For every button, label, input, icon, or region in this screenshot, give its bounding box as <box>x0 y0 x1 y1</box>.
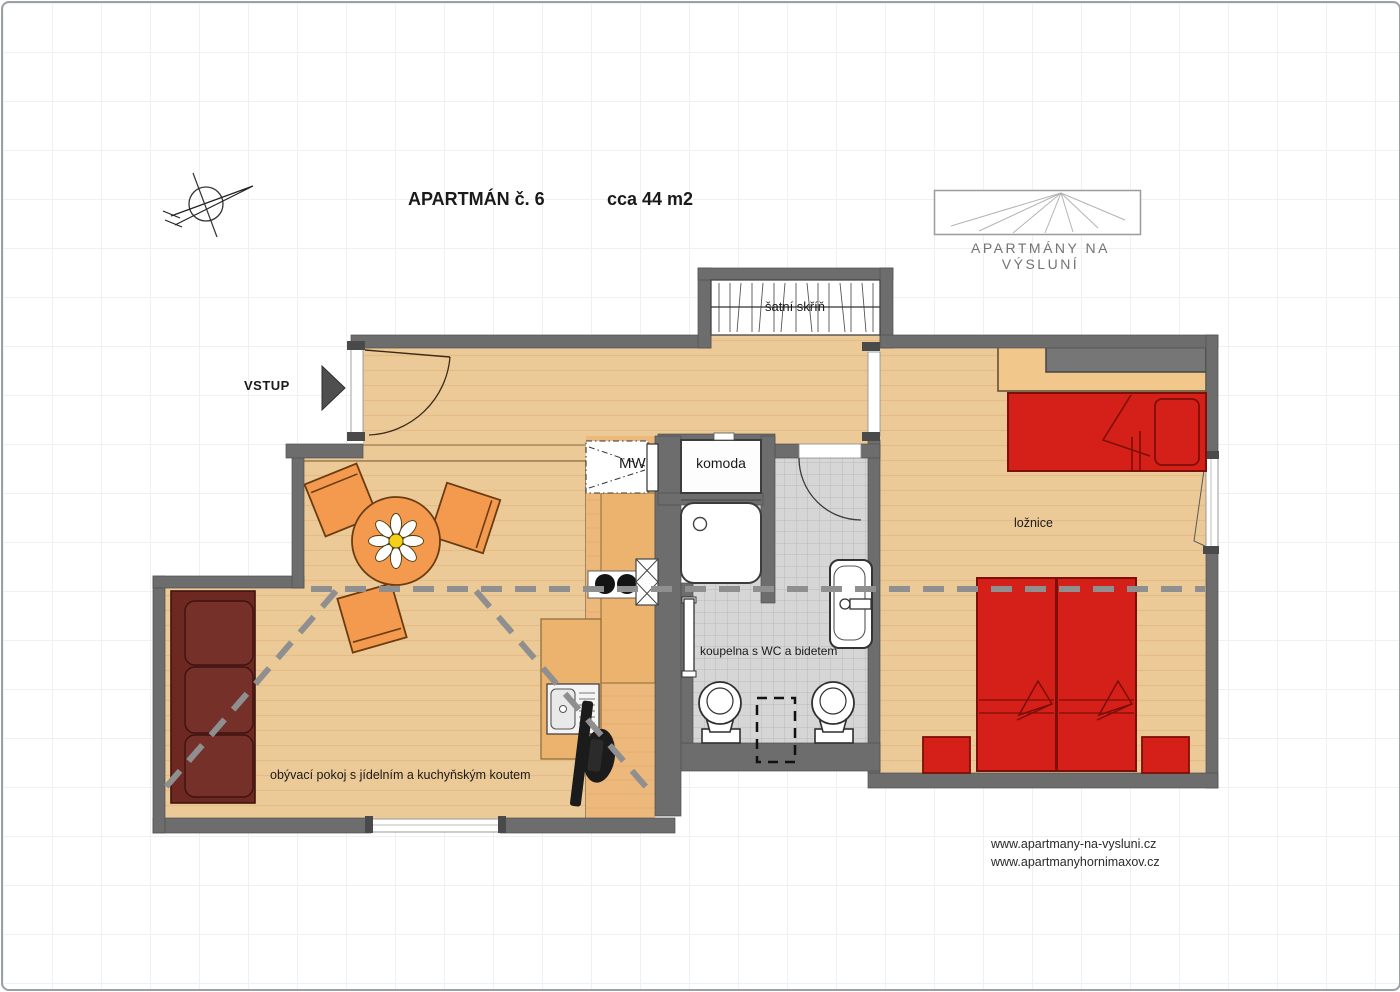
shower <box>681 500 761 583</box>
faucet-icon <box>840 599 850 609</box>
fridge <box>636 559 658 605</box>
dining-table <box>352 497 440 585</box>
logo-caption: APARTMÁNY NA VÝSLUNÍ <box>933 240 1148 272</box>
cooktop <box>588 571 638 598</box>
daisy-icon <box>369 514 424 569</box>
wardrobe <box>711 280 880 335</box>
towel-radiator <box>682 597 696 677</box>
sun-rays-icon <box>933 189 1145 237</box>
floorplan-canvas: APARTMÁNY NA VÝSLUNÍ APARTMÁN č. 6 cca 4… <box>1 1 1400 991</box>
bathroom-sink <box>830 560 872 648</box>
shower-drain <box>694 518 707 531</box>
dresser-komoda <box>681 433 761 493</box>
microwave <box>586 441 658 493</box>
living-room-window <box>365 816 506 833</box>
logo: APARTMÁNY NA VÝSLUNÍ <box>933 189 1148 272</box>
toilet-wc <box>699 682 741 743</box>
pillow <box>1155 399 1199 465</box>
single-bed <box>1008 393 1206 471</box>
website-url: www.apartmanyhornimaxov.cz <box>991 853 1160 871</box>
compass-icon <box>153 161 273 251</box>
arrow-right-icon <box>322 366 345 410</box>
bedroom-cabinet <box>1046 345 1206 372</box>
footer-websites: www.apartmany-na-vysluni.cz www.apartman… <box>991 835 1160 871</box>
nightstand <box>1142 737 1189 773</box>
website-url: www.apartmany-na-vysluni.cz <box>991 835 1160 853</box>
floorplan-drawing <box>3 3 1399 989</box>
nightstand <box>923 737 970 773</box>
toilet-bidet <box>812 682 854 743</box>
bedroom-desk <box>998 345 1206 391</box>
